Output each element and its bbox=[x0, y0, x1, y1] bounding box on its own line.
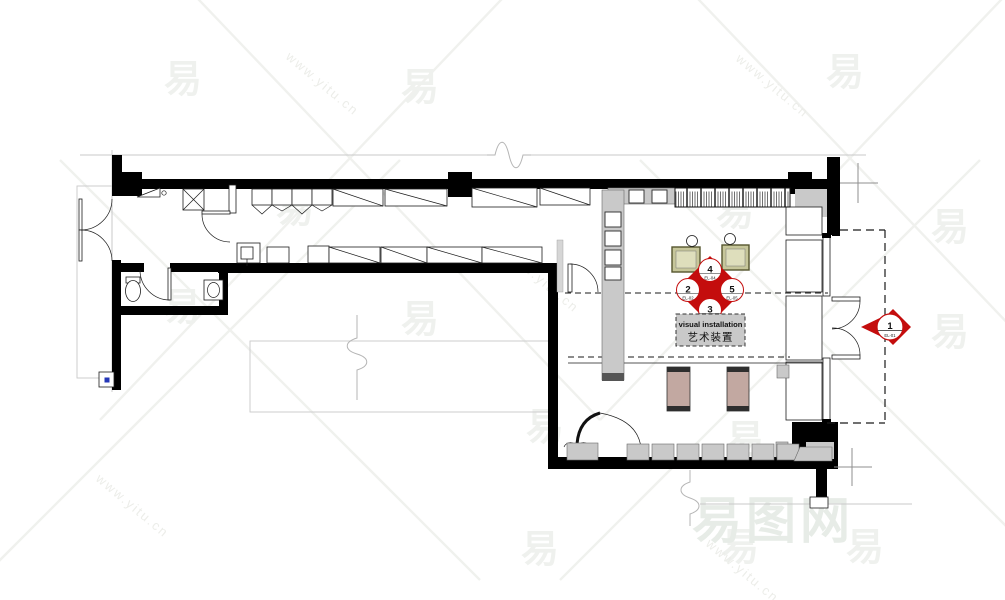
cross-marker bbox=[834, 448, 872, 486]
svg-text:5: 5 bbox=[729, 285, 735, 296]
adjacent-area-outline bbox=[250, 341, 556, 412]
display-counter bbox=[381, 247, 427, 263]
gallery-display-walls bbox=[557, 188, 790, 381]
display-counter bbox=[427, 247, 482, 263]
floor-plan-canvas: 易易易易易易易易易易易易易易 www.yitu.cn www.yitu.cn w… bbox=[0, 0, 1005, 600]
display-counter bbox=[540, 188, 590, 205]
installation-label-zh: 艺术装置 bbox=[688, 331, 734, 344]
window-wall bbox=[776, 207, 885, 457]
room-left-wall bbox=[548, 264, 558, 465]
pedestal bbox=[727, 367, 749, 411]
svg-text:EL-01: EL-01 bbox=[884, 333, 896, 338]
watermark-url-text: www.yitu.cn bbox=[732, 50, 812, 120]
striation-shelf bbox=[675, 188, 790, 207]
watermark-glyph: 易 bbox=[401, 67, 439, 109]
display-counter bbox=[333, 189, 383, 206]
display-counter bbox=[472, 188, 537, 207]
svg-text:4: 4 bbox=[707, 265, 713, 276]
elevation-circle-top: 4 EL-04 bbox=[699, 259, 722, 282]
bench bbox=[672, 236, 700, 273]
svg-text:EL-02: EL-02 bbox=[682, 295, 694, 300]
bench bbox=[722, 234, 749, 271]
toilet bbox=[126, 277, 141, 302]
break-symbol bbox=[487, 142, 531, 168]
watermark-glyph: 易 bbox=[164, 59, 202, 101]
right-double-door bbox=[832, 297, 860, 359]
display-counter bbox=[482, 247, 542, 263]
corridor-bottom-wall bbox=[218, 263, 558, 273]
svg-text:1: 1 bbox=[887, 321, 893, 332]
corridor-door bbox=[202, 185, 236, 242]
installation-label-en: visual installation bbox=[679, 320, 743, 329]
floor-plan-drawing: 易易易易易易易易易易易易易易 www.yitu.cn www.yitu.cn w… bbox=[0, 0, 1005, 600]
right-wall-top bbox=[827, 157, 840, 235]
shaft-column bbox=[183, 189, 204, 210]
svg-text:EL-05: EL-05 bbox=[726, 295, 738, 300]
elevation-marker-single: 1 EL-01 bbox=[861, 309, 911, 345]
fixtures bbox=[126, 188, 224, 302]
display-counter bbox=[329, 247, 380, 263]
column bbox=[448, 172, 472, 197]
pilaster bbox=[816, 469, 827, 499]
door-stop bbox=[162, 191, 166, 195]
watermark-glyph: 易 bbox=[931, 312, 969, 354]
watermark-glyph: 易 bbox=[401, 299, 439, 341]
break-symbol bbox=[347, 315, 367, 400]
cabinet bbox=[237, 243, 260, 266]
watermark-glyph: 易 bbox=[521, 529, 559, 571]
sink bbox=[204, 280, 223, 300]
elevation-circle-left: 2 EL-02 bbox=[677, 279, 700, 302]
installation-label: visual installation 艺术装置 bbox=[676, 314, 745, 346]
stool bbox=[687, 236, 698, 247]
display-wall-end bbox=[602, 373, 624, 381]
survey-point bbox=[99, 372, 114, 387]
watermark-glyph: 易 bbox=[931, 207, 969, 249]
svg-text:2: 2 bbox=[685, 285, 690, 296]
left-wall bbox=[112, 260, 121, 390]
watermark-url-text: www.yitu.cn bbox=[282, 48, 362, 118]
watermark-url-text: www.yitu.cn bbox=[92, 470, 172, 540]
pedestal bbox=[667, 367, 690, 411]
display-counter bbox=[385, 189, 447, 206]
elevation-circle-right: 5 EL-05 bbox=[721, 279, 744, 302]
gallery-entry-door bbox=[568, 264, 598, 292]
svg-text:EL-04: EL-04 bbox=[704, 275, 716, 280]
watermark-glyph: 易 bbox=[826, 52, 864, 94]
stool bbox=[725, 234, 736, 245]
watermark-glyph: 易 bbox=[526, 407, 564, 449]
